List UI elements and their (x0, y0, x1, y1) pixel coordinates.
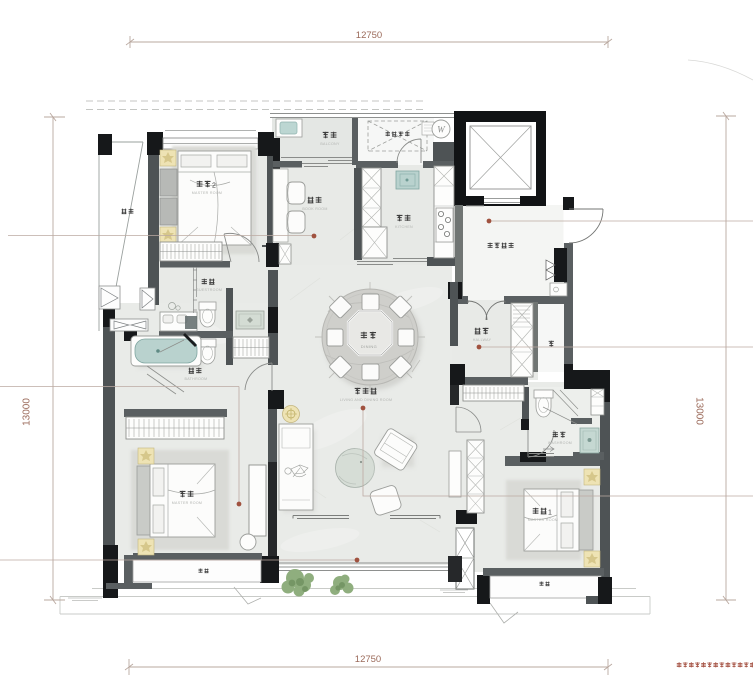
svg-text:WASHROOM: WASHROOM (548, 441, 572, 445)
svg-text:KITCHEN: KITCHEN (395, 225, 413, 229)
svg-text:12750: 12750 (355, 654, 381, 665)
svg-text:13000: 13000 (693, 397, 704, 425)
svg-text:2: 2 (212, 183, 216, 190)
svg-text:13000: 13000 (22, 398, 33, 426)
svg-text:12750: 12750 (356, 30, 382, 41)
svg-text:GUESTROOM: GUESTROOM (196, 288, 222, 292)
svg-text:MASTER ROOM: MASTER ROOM (528, 518, 558, 522)
svg-text:HALLWAY: HALLWAY (473, 338, 492, 342)
svg-text:MASTER ROOM: MASTER ROOM (192, 191, 222, 195)
svg-text:DINING: DINING (361, 344, 377, 349)
svg-text:BOOK ROOM: BOOK ROOM (302, 207, 327, 211)
svg-text:LIVING AND DINING ROOM: LIVING AND DINING ROOM (340, 398, 393, 402)
svg-text:BALCONY: BALCONY (320, 142, 340, 146)
svg-text:MASTER ROOM: MASTER ROOM (172, 501, 202, 505)
svg-text:1: 1 (548, 510, 552, 517)
svg-text:BATHROOM: BATHROOM (185, 377, 208, 381)
